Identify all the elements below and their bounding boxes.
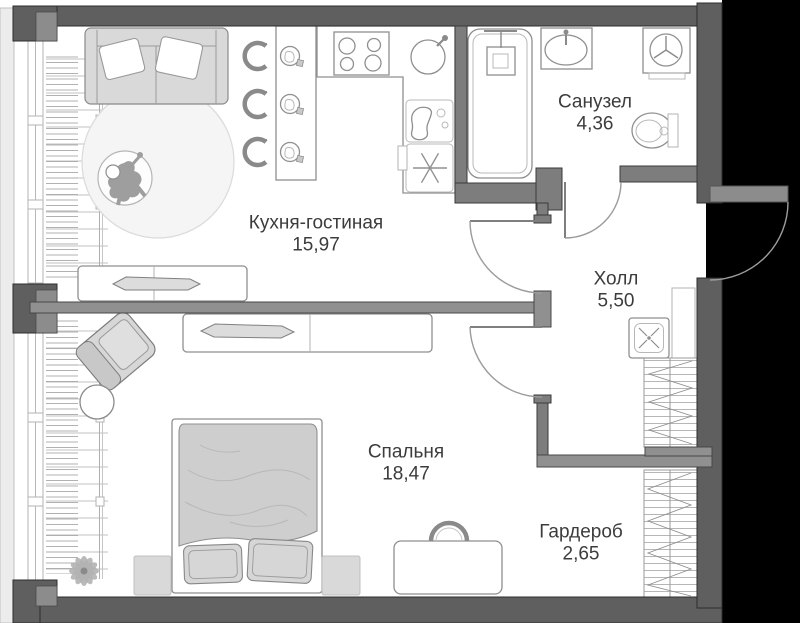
bar-stool-icon	[245, 43, 267, 69]
tv-console-living	[78, 266, 247, 301]
room-label-bathroom: Санузел 4,36	[558, 92, 632, 137]
hall-walls	[534, 203, 551, 457]
room-name: Спальня	[368, 442, 444, 464]
bathroom-door	[565, 182, 621, 238]
bar-stool-icon	[245, 139, 267, 165]
washing-machine-icon	[643, 28, 690, 79]
closet-upper	[644, 358, 697, 447]
nightstand-right	[322, 556, 360, 595]
vent-icon	[629, 318, 669, 358]
closet-lower	[644, 470, 697, 597]
desk	[394, 523, 502, 594]
bar-stool-icon	[245, 91, 267, 117]
room-name: Кухня-гостиная	[249, 213, 383, 235]
side-table	[80, 385, 114, 419]
room-label-bedroom: Спальня 18,47	[368, 442, 444, 487]
window-sill-strip	[0, 8, 14, 623]
figure-on-rug	[98, 151, 152, 205]
wardrobe-divider-wall	[537, 447, 712, 467]
floor-plan-drawing	[0, 0, 800, 623]
floor-plan: Кухня-гостиная 15,97 Санузел 4,36 Холл 5…	[0, 0, 800, 623]
bed	[172, 419, 322, 593]
room-area: 2,65	[539, 544, 623, 566]
bed-pillow	[247, 538, 313, 583]
toilet	[632, 113, 678, 148]
room-name: Гардероб	[539, 522, 623, 544]
hall-cabinet	[672, 288, 695, 358]
tv-icon	[201, 324, 294, 338]
kitchen-door	[470, 221, 542, 293]
duvet	[179, 424, 317, 546]
room-area: 18,47	[368, 464, 444, 486]
room-area: 15,97	[249, 235, 383, 257]
room-label-hall: Холл 5,50	[594, 269, 639, 314]
bathtub	[468, 29, 532, 178]
room-name: Санузел	[558, 92, 632, 114]
room-label-wardrobe: Гардероб 2,65	[539, 522, 623, 567]
sofa	[85, 28, 228, 104]
bedroom-door	[470, 327, 542, 397]
nightstand-left	[134, 556, 171, 595]
tv-console-bedroom	[183, 314, 432, 352]
tv-icon	[113, 277, 200, 290]
room-label-kitchen-living: Кухня-гостиная 15,97	[249, 213, 383, 258]
washbasin	[541, 28, 592, 69]
room-area: 5,50	[594, 291, 639, 313]
room-name: Холл	[594, 269, 639, 291]
room-area: 4,36	[558, 114, 632, 136]
bar-stools	[245, 43, 267, 165]
bed-pillow	[183, 544, 242, 584]
